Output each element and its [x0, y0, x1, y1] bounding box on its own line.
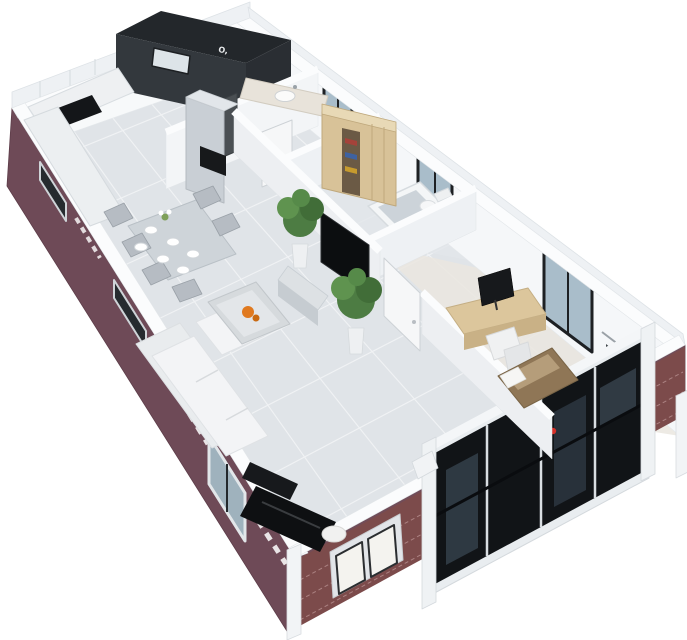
- laundry-tap: [293, 85, 297, 89]
- laundry-sink: [275, 91, 295, 102]
- entry-logo: O,: [218, 45, 229, 56]
- wardrobe-niche: [342, 128, 360, 196]
- fruit-bowl-orange-1: [242, 306, 254, 318]
- plate-2: [167, 238, 180, 246]
- fruit-bowl-orange-2: [253, 315, 260, 322]
- plant-2-foliage-d: [348, 268, 366, 286]
- table-flower-1: [159, 211, 164, 216]
- table-flower-2: [167, 210, 172, 215]
- floor-plan-3d-render: O,: [0, 0, 687, 640]
- plate-3: [187, 250, 200, 258]
- corner-post-south: [287, 544, 301, 640]
- floor-plan-render-stage: O,: [0, 0, 687, 640]
- treadmill-roller: [322, 526, 346, 542]
- plate-6: [177, 266, 190, 274]
- plant-1-foliage-d: [292, 189, 310, 207]
- plate-4: [135, 243, 148, 251]
- plate-5: [157, 255, 170, 263]
- porch-post-right: [641, 322, 655, 481]
- hall-door-knob: [412, 320, 416, 324]
- corner-post-east: [676, 390, 687, 478]
- plant-1-pot: [292, 244, 308, 268]
- plate-1: [145, 226, 158, 234]
- plant-2-pot: [348, 328, 364, 354]
